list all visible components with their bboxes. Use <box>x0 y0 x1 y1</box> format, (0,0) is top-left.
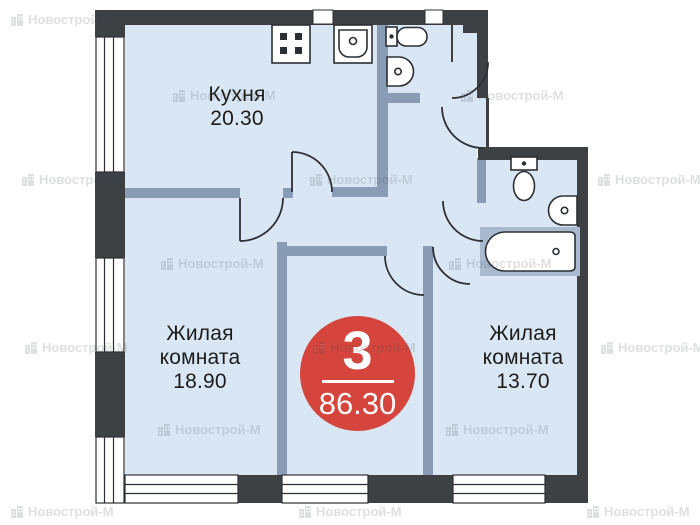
window-left-bottom <box>96 437 124 503</box>
window-bottom-right <box>453 475 545 503</box>
badge-total-area: 86.30 <box>319 389 397 419</box>
window-left-top <box>96 37 124 172</box>
bathroom-sink-icon <box>549 196 578 225</box>
bathtub-icon <box>480 227 580 276</box>
wall-vent-notch <box>313 10 333 24</box>
room-label-living-right: Жилая комната 13.70 <box>423 322 623 394</box>
room-area: 20.30 <box>137 107 337 131</box>
room-area: 13.70 <box>423 370 623 394</box>
apartment-badge: 3 86.30 <box>300 316 415 431</box>
wc-toilet-icon <box>386 27 427 46</box>
stove-icon <box>272 25 310 63</box>
kitchen-sink-icon <box>334 25 372 63</box>
window-bottom-left <box>125 475 238 503</box>
room-area: 18.90 <box>100 370 300 394</box>
room-name: Жилая <box>423 322 623 346</box>
window-bottom-center <box>282 475 368 503</box>
floor-plan <box>0 0 700 525</box>
room-label-living-left: Жилая комната 18.90 <box>100 322 300 394</box>
badge-divider <box>322 380 394 383</box>
room-name: Жилая <box>100 322 300 346</box>
bathroom-toilet-icon <box>511 157 537 201</box>
wall-vent-notch <box>425 10 443 24</box>
floorplan-page: Кухня 20.30 Жилая комната 18.90 Жилая ко… <box>0 0 700 525</box>
badge-room-count: 3 <box>342 327 372 375</box>
wc-sink-icon <box>387 57 414 86</box>
room-name: Кухня <box>137 83 337 107</box>
room-name: комната <box>100 346 300 370</box>
room-label-kitchen: Кухня 20.30 <box>137 83 337 131</box>
room-name: комната <box>423 346 623 370</box>
